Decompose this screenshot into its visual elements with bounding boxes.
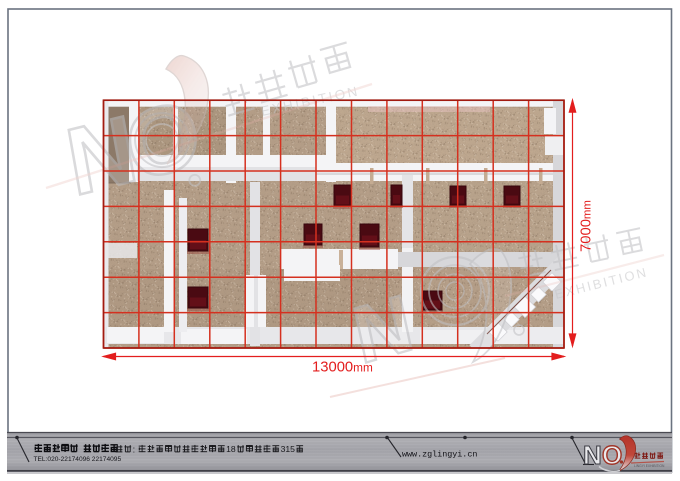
svg-text:www.zglingyi.cn: www.zglingyi.cn	[402, 450, 477, 460]
svg-text:13000mm: 13000mm	[312, 360, 373, 376]
svg-text:N: N	[583, 440, 601, 470]
svg-text:LINGYI EXHIBITION: LINGYI EXHIBITION	[634, 464, 665, 468]
svg-text:TEL:020-22174096 22174095: TEL:020-22174096 22174095	[34, 456, 122, 463]
svg-text:7000mm: 7000mm	[579, 200, 595, 252]
svg-text::: :	[133, 445, 136, 455]
svg-text:O: O	[602, 440, 622, 470]
svg-text:18: 18	[226, 444, 236, 454]
svg-text:315: 315	[281, 444, 296, 454]
